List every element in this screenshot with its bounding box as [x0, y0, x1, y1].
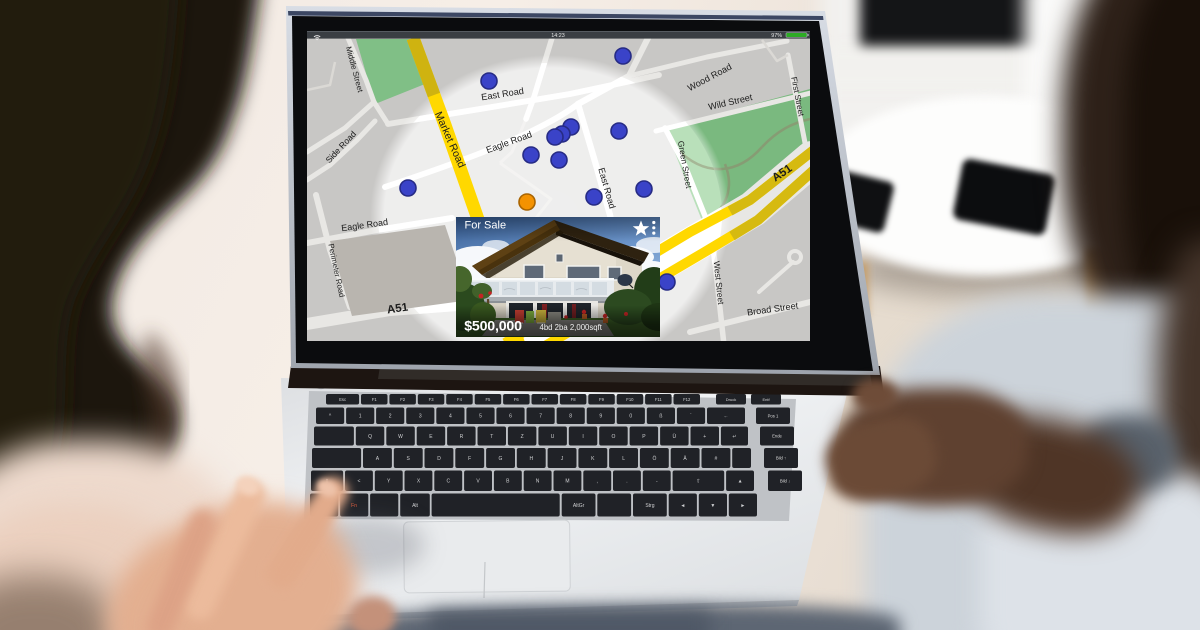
svg-text:Ende: Ende [772, 434, 782, 439]
svg-text:Ö: Ö [652, 455, 656, 462]
svg-text:▲: ▲ [738, 479, 743, 485]
svg-text:8: 8 [569, 414, 572, 420]
svg-text:◄: ◄ [680, 503, 685, 509]
svg-text:O: O [612, 434, 616, 440]
svg-text:D: D [437, 456, 441, 462]
svg-text:97%: 97% [771, 33, 782, 39]
svg-text:Druck: Druck [726, 397, 736, 402]
svg-text:1: 1 [359, 414, 362, 420]
svg-text:F7: F7 [542, 397, 548, 402]
svg-text:F4: F4 [457, 397, 463, 402]
svg-text:Strg: Strg [645, 503, 654, 509]
svg-text:0: 0 [629, 414, 632, 420]
svg-text:F2: F2 [400, 397, 406, 402]
svg-text:T: T [490, 434, 493, 440]
svg-text:Fn: Fn [351, 503, 357, 509]
svg-text:►: ► [740, 503, 745, 509]
svg-text:Z: Z [521, 434, 524, 440]
svg-text:Pos 1: Pos 1 [768, 413, 779, 418]
svg-text:14:23: 14:23 [551, 33, 565, 39]
svg-text:F6: F6 [514, 397, 520, 402]
svg-text:I: I [582, 434, 583, 440]
svg-text:Bild ↑: Bild ↑ [776, 456, 786, 461]
svg-text:F1: F1 [372, 397, 378, 402]
svg-text:←: ← [724, 414, 729, 420]
svg-text:2: 2 [389, 414, 392, 420]
svg-text:G: G [499, 456, 503, 462]
svg-text:Ü: Ü [672, 433, 676, 440]
svg-text:▼: ▼ [710, 503, 715, 509]
svg-text:C: C [446, 479, 450, 485]
svg-text:L: L [622, 456, 625, 462]
svg-text:3: 3 [419, 414, 422, 420]
svg-text:#: # [715, 456, 718, 462]
svg-text:F5: F5 [485, 397, 491, 402]
svg-text:<: < [357, 479, 360, 485]
svg-text:$500,000: $500,000 [464, 319, 522, 335]
svg-text:R: R [460, 434, 464, 440]
svg-text:H: H [529, 456, 533, 462]
svg-text:4: 4 [449, 414, 452, 420]
svg-text:N: N [536, 479, 540, 485]
svg-text:Q: Q [368, 434, 372, 440]
svg-text:W: W [398, 434, 403, 440]
svg-text:⇧: ⇧ [696, 479, 700, 485]
svg-text:.: . [626, 479, 627, 485]
svg-text:F12: F12 [683, 397, 691, 402]
svg-text:AltGr: AltGr [573, 503, 585, 509]
svg-text:5: 5 [479, 414, 482, 420]
svg-text:F10: F10 [626, 397, 634, 402]
svg-text:ß: ß [659, 414, 662, 420]
svg-text:4bd 2ba 2,000sqft: 4bd 2ba 2,000sqft [540, 323, 603, 332]
svg-text:↵: ↵ [732, 434, 736, 440]
svg-text:6: 6 [509, 414, 512, 420]
svg-text:F3: F3 [429, 397, 435, 402]
svg-text:,: , [597, 479, 598, 485]
svg-text:F8: F8 [571, 397, 577, 402]
svg-text:F9: F9 [599, 397, 605, 402]
svg-text:Entf: Entf [762, 397, 770, 402]
svg-text:U: U [551, 434, 555, 440]
svg-text:For Sale: For Sale [465, 220, 507, 232]
svg-text:Esc: Esc [339, 397, 346, 402]
svg-text:F: F [468, 456, 471, 462]
svg-text:7: 7 [539, 414, 542, 420]
svg-text:F11: F11 [655, 397, 663, 402]
svg-text:Bild ↓: Bild ↓ [780, 478, 790, 483]
svg-text:+: + [703, 434, 706, 440]
svg-text:Alt: Alt [412, 503, 418, 509]
svg-text:9: 9 [599, 414, 602, 420]
svg-text:M: M [565, 479, 569, 485]
